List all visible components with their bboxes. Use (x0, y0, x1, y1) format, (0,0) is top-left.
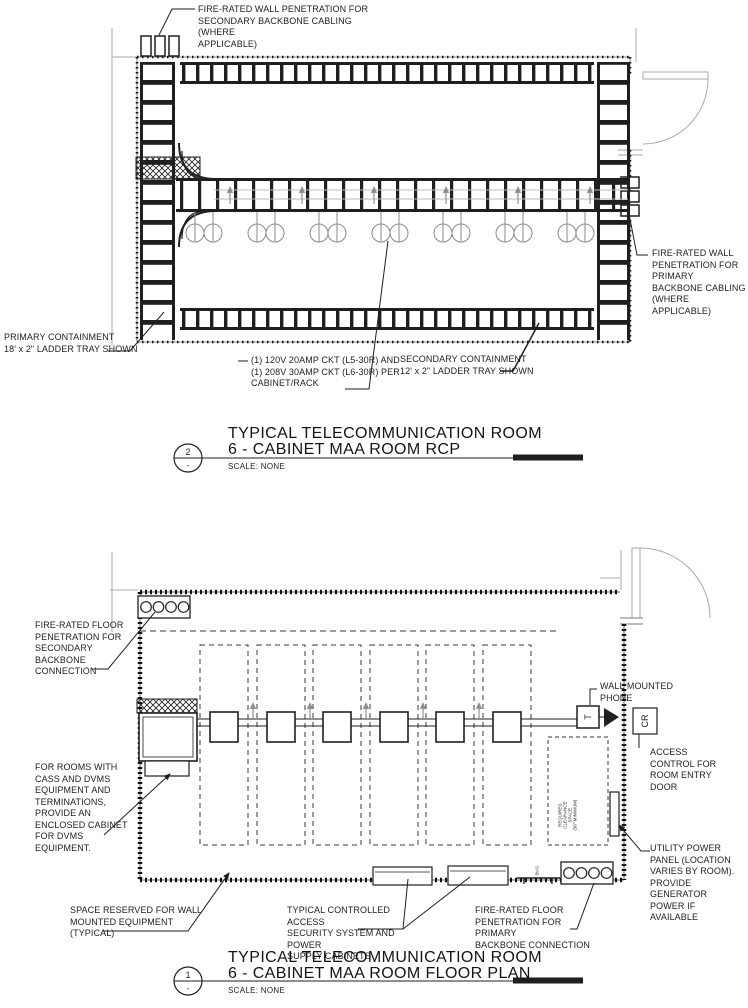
label-floor-penetration-secondary: FIRE-RATED FLOOR PENETRATION FOR SECONDA… (35, 620, 130, 678)
label-required-clearance: REQUIRED CLEARANCE SPACE (36" MINIMUM) (557, 798, 577, 833)
rcp-ladder-tray-bottom (180, 308, 594, 330)
floor-bas-bench (517, 878, 560, 884)
floor-detail-number: 1 (185, 970, 190, 980)
rcp-ceiling-fixtures (186, 212, 594, 242)
floor-dvms-cabinet (137, 699, 197, 776)
label-dvms-note: FOR ROOMS WITH CASS AND DVMS EQUIPMENT A… (35, 762, 130, 854)
label-floor-penetration-primary: FIRE-RATED FLOOR PENETRATION FOR PRIMARY… (475, 905, 600, 951)
floor-penetration-secondary (138, 596, 190, 618)
label-wall-penetration-primary: FIRE-RATED WALL PENETRATION FOR PRIMARY … (652, 248, 747, 317)
floor-door-jamb (620, 618, 643, 624)
rcp-detail-sub: - (187, 461, 190, 470)
label-primary-containment: PRIMARY CONTAINMENT 18' x 2" LADDER TRAY… (4, 332, 164, 355)
rcp-detail-number: 2 (185, 447, 190, 457)
rcp-ladder-tray-top (180, 62, 594, 84)
label-access-control: ACCESS CONTROL FOR ROOM ENTRY DOOR (650, 747, 725, 793)
rcp-title-line2: 6 - CABINET MAA ROOM RCP (228, 441, 460, 459)
label-secondary-containment: SECONDARY CONTAINMENT 12' x 2" LADDER TR… (400, 354, 550, 377)
label-wall-mounted-phone: WALL MOUNTED PHONE (600, 681, 680, 704)
label-utility-power-panel: UTILITY POWER PANEL (LOCATION VARIES BY … (650, 843, 745, 924)
label-circuit-note: (1) 120V 20AMP CKT (L5-30R) AND (1) 208V… (251, 355, 411, 390)
rcp-ladder-tray-left-primary (140, 62, 175, 340)
floor-title-line2: 6 - CABINET MAA ROOM FLOOR PLAN (228, 965, 531, 983)
floor-penetration-primary (561, 862, 613, 884)
drawing-sheet: 2 - (0, 0, 748, 1008)
floor-detail-sub: - (187, 984, 190, 993)
rcp-tray-hatch-block (136, 157, 200, 179)
floor-cabinet-clearance-outlines (200, 645, 531, 845)
rcp-title-scale: SCALE: NONE (228, 462, 285, 471)
card-reader-text: CR (632, 708, 658, 734)
label-bas: BAS (534, 864, 539, 878)
floor-title-scale: SCALE: NONE (228, 986, 285, 995)
plan-linework: 2 - (0, 0, 748, 1008)
phone-symbol-text: T (577, 706, 599, 728)
label-space-reserved: SPACE RESERVED FOR WALL MOUNTED EQUIPMEN… (70, 905, 205, 940)
label-wall-penetration-secondary: FIRE-RATED WALL PENETRATION FOR SECONDAR… (198, 4, 383, 50)
rcp-central-tray (176, 178, 630, 212)
rcp-wall-penetrations-secondary (141, 36, 179, 56)
floor-utility-panel (610, 792, 619, 836)
